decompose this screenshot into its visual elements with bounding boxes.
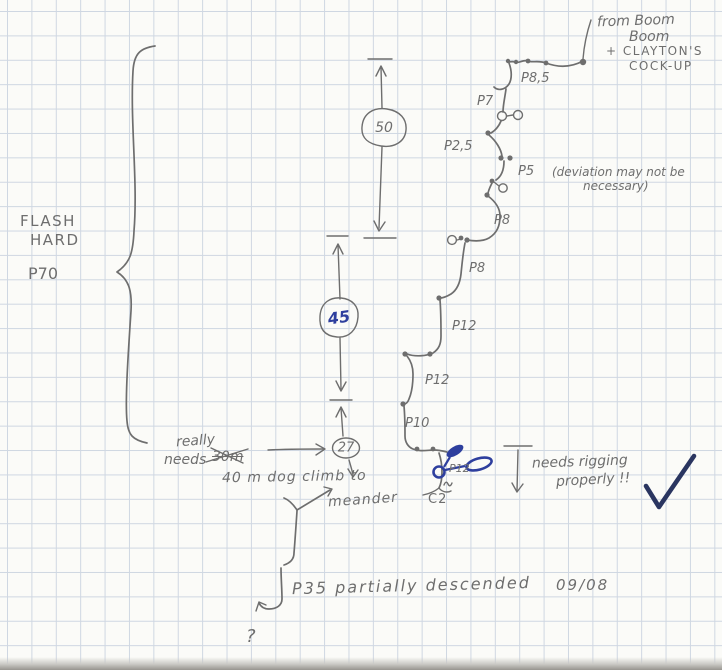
shaft xyxy=(381,67,382,108)
rope-length-27: 27 xyxy=(338,442,355,455)
graph-paper-sketch: from Boom Boom + CLAYTON'S COCK-UP FLASH… xyxy=(0,0,722,670)
pitch-label-c2: C2 xyxy=(428,493,447,506)
squiggle xyxy=(444,482,452,486)
rigging-note-line1: needs rigging xyxy=(532,453,628,470)
origin-note-line3: + CLAYTON'S xyxy=(606,45,703,57)
pitch-label-p12a: P12 xyxy=(452,320,476,333)
rope-p8b xyxy=(440,243,465,298)
rope-p85b xyxy=(503,89,506,112)
pitch-label-p85: P8,5 xyxy=(521,72,550,85)
bolt-dot xyxy=(427,351,432,356)
climb-note-struck: 30m xyxy=(212,450,243,464)
pitch-label-p25: P2,5 xyxy=(444,140,473,153)
shaft xyxy=(268,449,323,450)
descent xyxy=(284,511,297,565)
deviation-link xyxy=(507,115,513,116)
shaft xyxy=(517,450,518,491)
rope-length-45: 45 xyxy=(327,309,351,328)
rope-length-50: 50 xyxy=(375,121,393,135)
deviation-ring xyxy=(448,236,457,245)
scan-edge-shadow xyxy=(0,657,722,670)
branch xyxy=(297,490,330,510)
deviation-note-line2: necessary) xyxy=(583,180,649,192)
flash-note-line2: HARD xyxy=(30,233,80,248)
brace-stroke xyxy=(117,46,155,443)
arrow-needs-rigging xyxy=(504,446,532,492)
origin-line xyxy=(583,20,591,59)
bolt-dot xyxy=(498,155,503,160)
checkmark-stroke xyxy=(646,456,694,507)
deviation-link xyxy=(494,182,499,186)
bolt-dot xyxy=(507,155,512,160)
deviation-note-line1: (deviation may not be xyxy=(552,166,685,178)
rigging-note-line2: properly !! xyxy=(556,471,631,489)
origin-note-line4: COCK-UP xyxy=(629,60,693,72)
rope-p12c xyxy=(439,453,442,488)
pitch-label-p12c: P12 xyxy=(449,463,470,474)
shaft xyxy=(341,408,343,436)
bolt-dot xyxy=(544,61,549,66)
deviation-ring xyxy=(498,112,507,121)
origin-note-line2: Boom xyxy=(629,30,669,44)
branch xyxy=(284,498,297,510)
pitch-label-p5: P5 xyxy=(518,165,534,178)
bolt-dot xyxy=(415,447,420,452)
ink-hanger-filled xyxy=(445,442,466,460)
rope-p85 xyxy=(494,63,511,89)
bolt-dot xyxy=(526,59,531,64)
deviation-ring xyxy=(499,184,507,192)
climb-note-needs: needs xyxy=(164,453,206,467)
bolt-dot xyxy=(464,237,469,242)
rope-p7 xyxy=(491,121,501,133)
deviation-link xyxy=(457,239,461,240)
rope-p12a xyxy=(407,300,441,356)
pitch-label-p10: P10 xyxy=(405,417,429,430)
bolt-dot xyxy=(514,60,518,64)
footer-note-date: 09/08 xyxy=(556,578,609,593)
sketch-strokes xyxy=(0,0,722,670)
question-mark: ? xyxy=(246,628,256,646)
rope-p25 xyxy=(496,161,504,180)
bolt-dot xyxy=(580,59,586,65)
origin-stroke xyxy=(583,20,591,59)
pitch-label-p70: P70 xyxy=(28,266,58,282)
climb-note-40m: 40 m dog climb to xyxy=(222,469,367,486)
p70-brace xyxy=(117,46,155,443)
pitch-label-p7: P7 xyxy=(477,95,493,108)
deviation-ring xyxy=(514,111,523,120)
arrow-50 xyxy=(362,59,406,238)
bolt-dot xyxy=(431,447,436,452)
origin-note-line1: from Boom xyxy=(597,13,675,30)
flash-note-line1: FLASH xyxy=(20,214,76,229)
checkmark xyxy=(646,456,694,507)
pitch-label-p12b: P12 xyxy=(425,374,449,387)
shaft xyxy=(379,147,382,228)
pitch-label-p8b: P8 xyxy=(469,262,485,275)
rope-p7b xyxy=(489,135,502,156)
rope-p12b xyxy=(404,356,413,404)
shaft xyxy=(340,338,341,389)
traverse-line xyxy=(506,59,586,67)
climb-note-really: really xyxy=(176,433,216,450)
rope-p5 xyxy=(488,183,492,194)
arrow-to-27 xyxy=(268,444,325,455)
shaft xyxy=(338,245,340,299)
pitch-label-p8a: P8 xyxy=(494,214,510,227)
